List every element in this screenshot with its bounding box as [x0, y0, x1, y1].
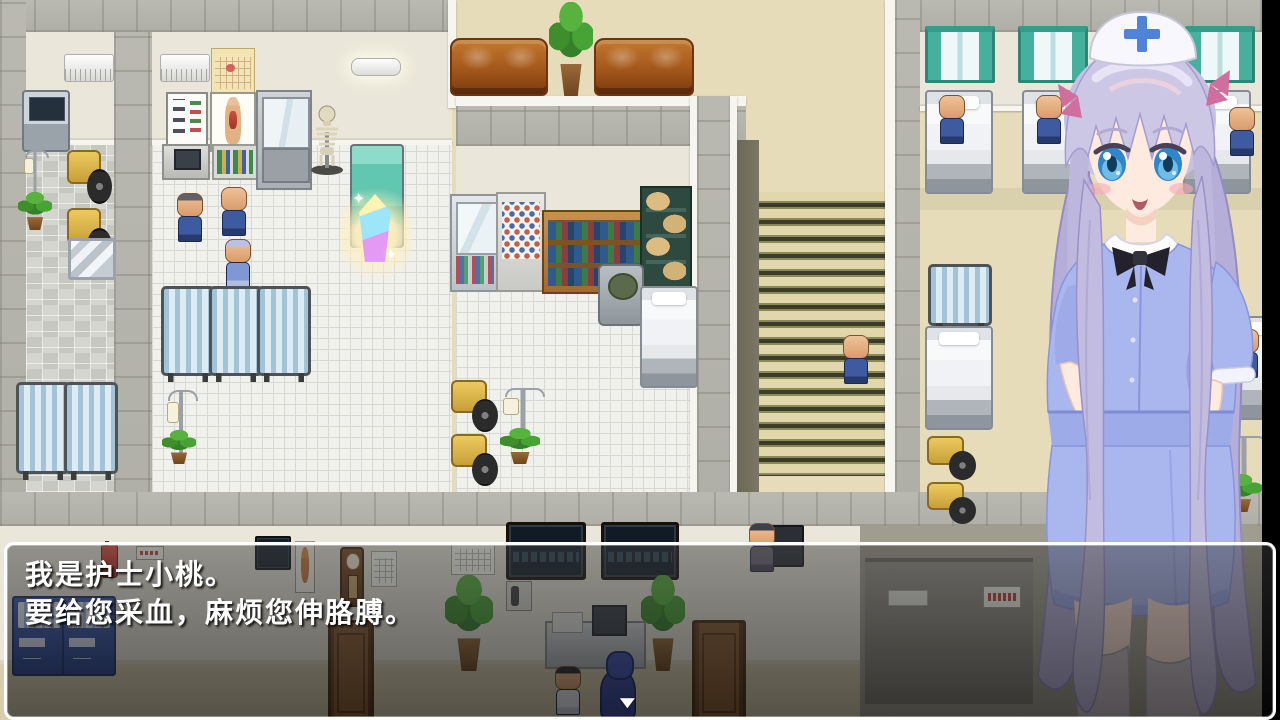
privacy-screen	[257, 286, 311, 376]
dish-shelf	[496, 192, 546, 292]
ac-unit	[160, 54, 210, 82]
mirror	[68, 238, 116, 280]
anatomy-poster	[210, 92, 256, 152]
dialogue-line-1: 我是护士小桃。	[25, 553, 235, 593]
ward-window	[925, 26, 995, 83]
dialogue-window[interactable]: 我是护士小桃。 要给您采血，麻烦您伸胳膊。 ▼	[4, 542, 1276, 720]
wall-divider-ab	[114, 32, 152, 548]
hospital-bed	[640, 286, 698, 388]
lobby-plant	[549, 2, 593, 96]
potted-plant	[162, 430, 196, 464]
plant-leaves	[549, 2, 593, 68]
privacy-screen	[64, 382, 118, 474]
skeleton-model	[308, 104, 346, 176]
plant-pot	[510, 452, 529, 464]
npc-patient-bald[interactable]	[838, 332, 872, 386]
privacy-screen	[16, 382, 70, 474]
plant-leaves	[18, 192, 52, 219]
wheelchair	[450, 432, 498, 486]
glass-cabinet	[450, 194, 500, 292]
game-screen[interactable]: ✦ ✦	[0, 0, 1280, 720]
wheelchair	[66, 148, 112, 204]
dialogue-line-2: 要给您采血，麻烦您伸胳膊。	[25, 591, 415, 631]
ward-bed	[925, 326, 993, 430]
plant-pot	[171, 452, 187, 464]
sparkle-icon: ✦	[352, 192, 365, 208]
npc-doctor[interactable]	[172, 190, 206, 244]
eye-chart-poster	[166, 92, 208, 150]
ac-unit	[64, 54, 114, 82]
plant-pot	[27, 217, 43, 230]
continue-indicator[interactable]: ▼	[615, 693, 640, 713]
stair-left-column	[697, 96, 730, 496]
privacy-screen	[161, 286, 215, 376]
plant-leaves	[500, 428, 540, 453]
plant-pot	[560, 64, 581, 96]
storage-rack	[640, 186, 692, 292]
medical-monitor	[22, 90, 70, 152]
wheelchair	[926, 480, 976, 524]
npc-player-girl[interactable]	[220, 236, 254, 290]
npc-patient-bald[interactable]	[216, 184, 250, 238]
plant-leaves	[162, 430, 196, 454]
bottle-shelf	[212, 144, 258, 180]
lobby-couch	[594, 38, 694, 96]
fluorescent-lamp	[351, 58, 401, 76]
potted-plant	[500, 428, 540, 464]
medicine-cabinet	[256, 90, 312, 190]
privacy-screen	[928, 264, 992, 326]
npc-patient-bald[interactable]	[934, 92, 968, 146]
stair-shadow	[737, 140, 759, 496]
wheelchair	[450, 378, 498, 432]
wheelchair	[926, 434, 976, 480]
wall-calendar	[211, 48, 255, 94]
privacy-screen	[209, 286, 263, 376]
sparkle-icon: ✦	[384, 248, 397, 264]
wall-top-band	[0, 0, 452, 32]
potted-plant	[18, 192, 52, 230]
stair-left-trim2	[730, 96, 737, 496]
desk-with-laptop	[162, 144, 210, 180]
office-chair-equipment	[598, 264, 644, 326]
stair-right-trim	[885, 0, 895, 496]
stair-right-column	[895, 0, 920, 496]
lobby-couch	[450, 38, 548, 96]
